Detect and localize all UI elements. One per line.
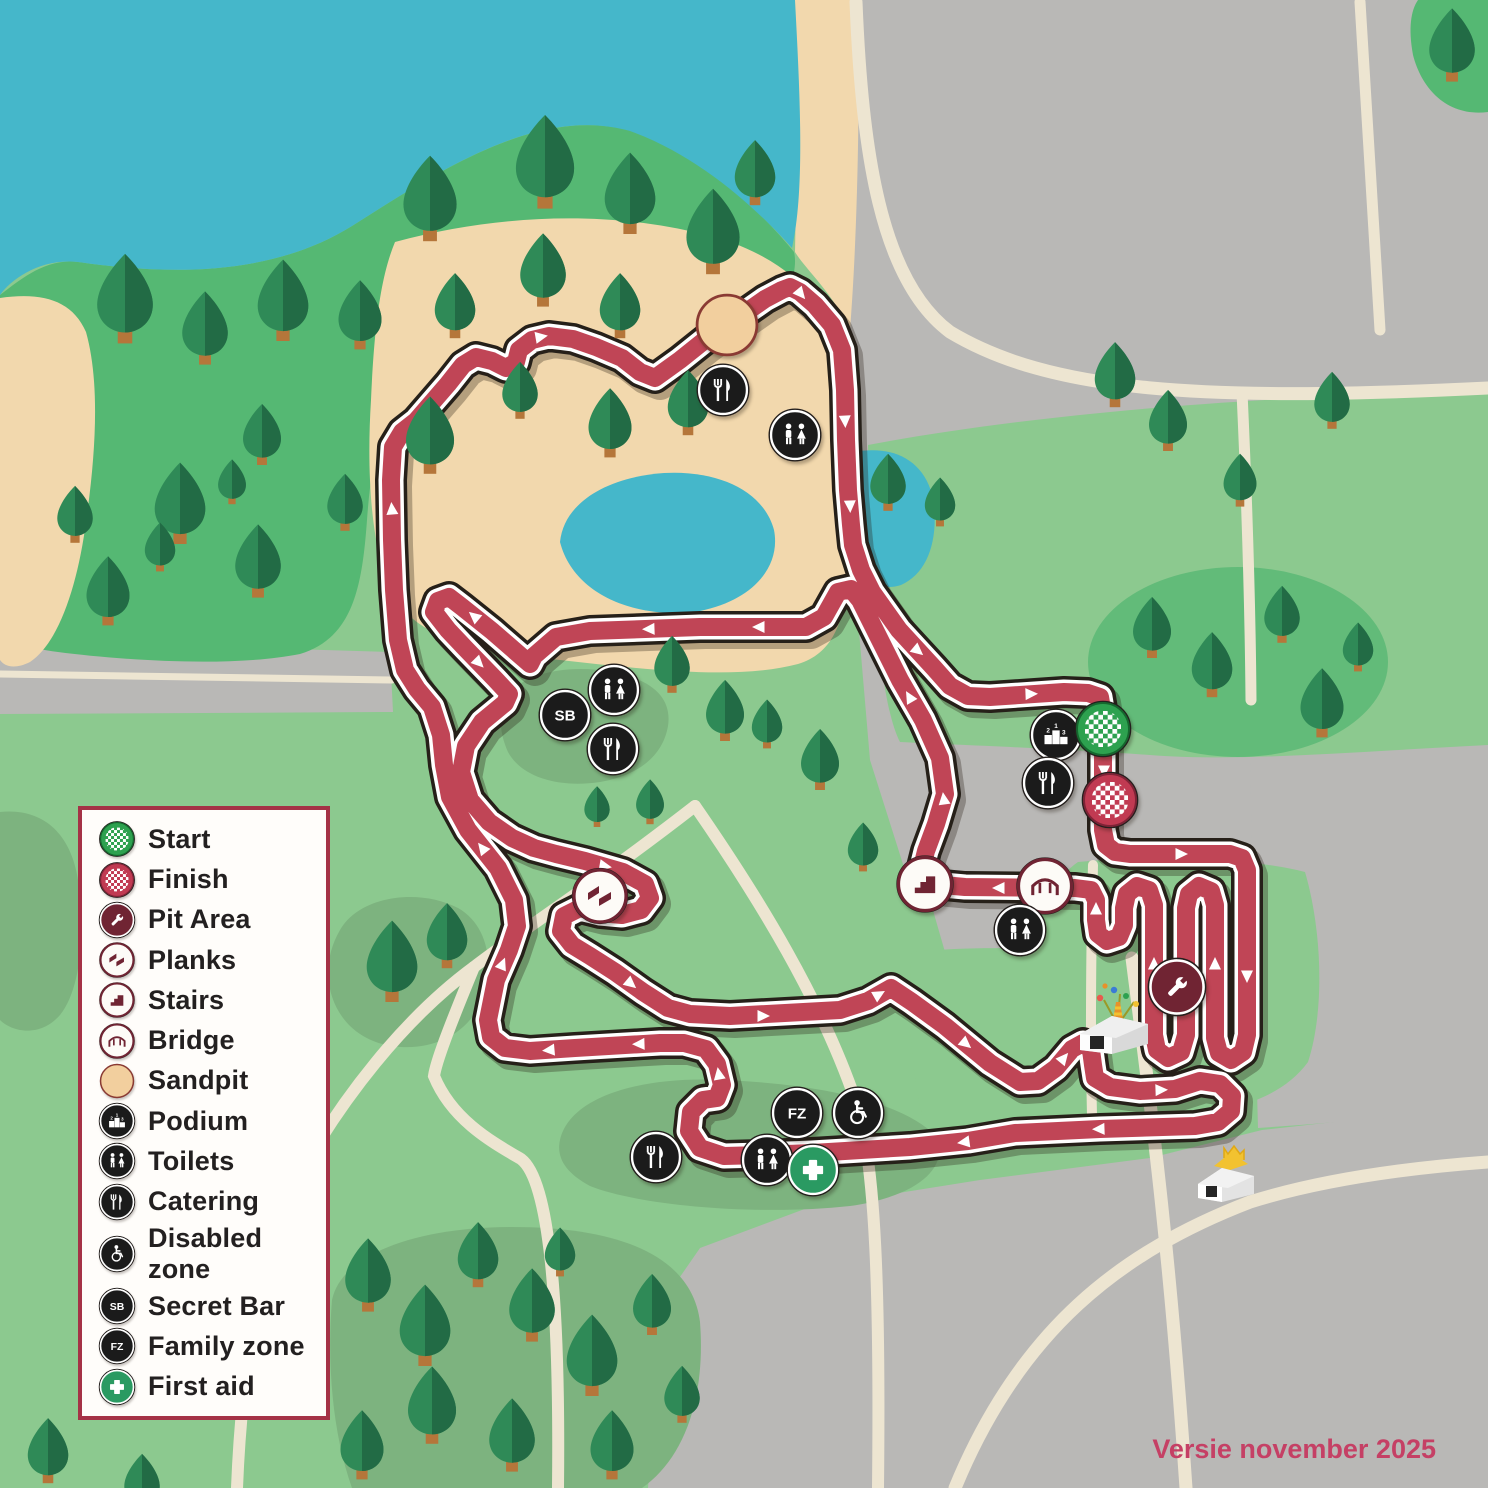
- marker-catering-icon: [1022, 757, 1074, 809]
- marker-catering-icon: [587, 723, 639, 775]
- marker-catering-icon: [697, 364, 749, 416]
- stairs-icon: [98, 981, 136, 1019]
- marker-toilets-icon: [769, 409, 821, 461]
- marker-secret-bar-icon: [539, 689, 591, 741]
- legend-item-label: Sandpit: [148, 1065, 248, 1096]
- legend-item-label: Stairs: [148, 985, 224, 1016]
- podium-icon: [98, 1102, 136, 1140]
- marker-toilets-icon: [588, 664, 640, 716]
- legend-item-label: Disabled zone: [148, 1223, 326, 1285]
- version-label: Versie november 2025: [1152, 1434, 1436, 1465]
- legend-item-label: Podium: [148, 1106, 248, 1137]
- start-icon: [98, 820, 136, 858]
- legend-item-disabled-zone: Disabled zone: [98, 1223, 326, 1285]
- marker-disabled-zone-icon: [832, 1087, 884, 1139]
- grove-patch: [1088, 567, 1388, 757]
- legend-item-toilets: Toilets: [98, 1142, 326, 1180]
- legend-item-label: Start: [148, 824, 211, 855]
- legend-item-label: Secret Bar: [148, 1291, 285, 1322]
- legend-item-start: Start: [98, 820, 326, 858]
- legend-item-label: First aid: [148, 1371, 255, 1402]
- disabled-zone-icon: [98, 1235, 136, 1273]
- bridge-icon: [98, 1022, 136, 1060]
- finish-icon: [98, 861, 136, 899]
- legend-item-podium: Podium: [98, 1102, 326, 1140]
- legend-item-label: Toilets: [148, 1146, 234, 1177]
- marker-finish-icon: [1083, 773, 1138, 828]
- legend-item-label: Catering: [148, 1186, 259, 1217]
- legend-panel: StartFinishPit AreaPlanksStairsBridgeSan…: [78, 806, 330, 1420]
- legend-item-stairs: Stairs: [98, 981, 326, 1019]
- legend-item-family-zone: Family zone: [98, 1327, 326, 1365]
- marker-sandpit-icon: [697, 295, 757, 355]
- marker-start-icon: [1076, 702, 1131, 757]
- marker-stairs-icon: [897, 856, 953, 912]
- legend-item-label: Finish: [148, 864, 229, 895]
- pit-area-icon: [98, 901, 136, 939]
- catering-icon: [98, 1183, 136, 1221]
- family-zone-icon: [98, 1327, 136, 1365]
- legend-item-secret-bar: Secret Bar: [98, 1287, 326, 1325]
- planks-icon: [98, 941, 136, 979]
- legend-item-label: Family zone: [148, 1331, 305, 1362]
- first-aid-icon: [98, 1368, 136, 1406]
- legend-item-planks: Planks: [98, 941, 326, 979]
- secret-bar-icon: [98, 1287, 136, 1325]
- marker-planks-icon: [573, 869, 628, 924]
- legend-item-first-aid: First aid: [98, 1368, 326, 1406]
- legend-item-label: Bridge: [148, 1025, 235, 1056]
- legend-item-label: Pit Area: [148, 904, 251, 935]
- legend-item-bridge: Bridge: [98, 1022, 326, 1060]
- toilets-icon: [98, 1142, 136, 1180]
- legend-item-finish: Finish: [98, 861, 326, 899]
- sandpit-icon: [98, 1062, 136, 1100]
- marker-toilets-icon: [994, 904, 1046, 956]
- marker-podium-icon: [1030, 709, 1082, 761]
- legend-item-sandpit: Sandpit: [98, 1062, 326, 1100]
- marker-family-zone-icon: [771, 1087, 823, 1139]
- marker-toilets-icon: [741, 1134, 793, 1186]
- marker-catering-icon: [630, 1131, 682, 1183]
- marker-pit-area-icon: [1148, 958, 1205, 1015]
- legend-item-pit-area: Pit Area: [98, 901, 326, 939]
- legend-item-catering: Catering: [98, 1183, 326, 1221]
- marker-first-aid-icon: [787, 1144, 839, 1196]
- legend-item-label: Planks: [148, 945, 236, 976]
